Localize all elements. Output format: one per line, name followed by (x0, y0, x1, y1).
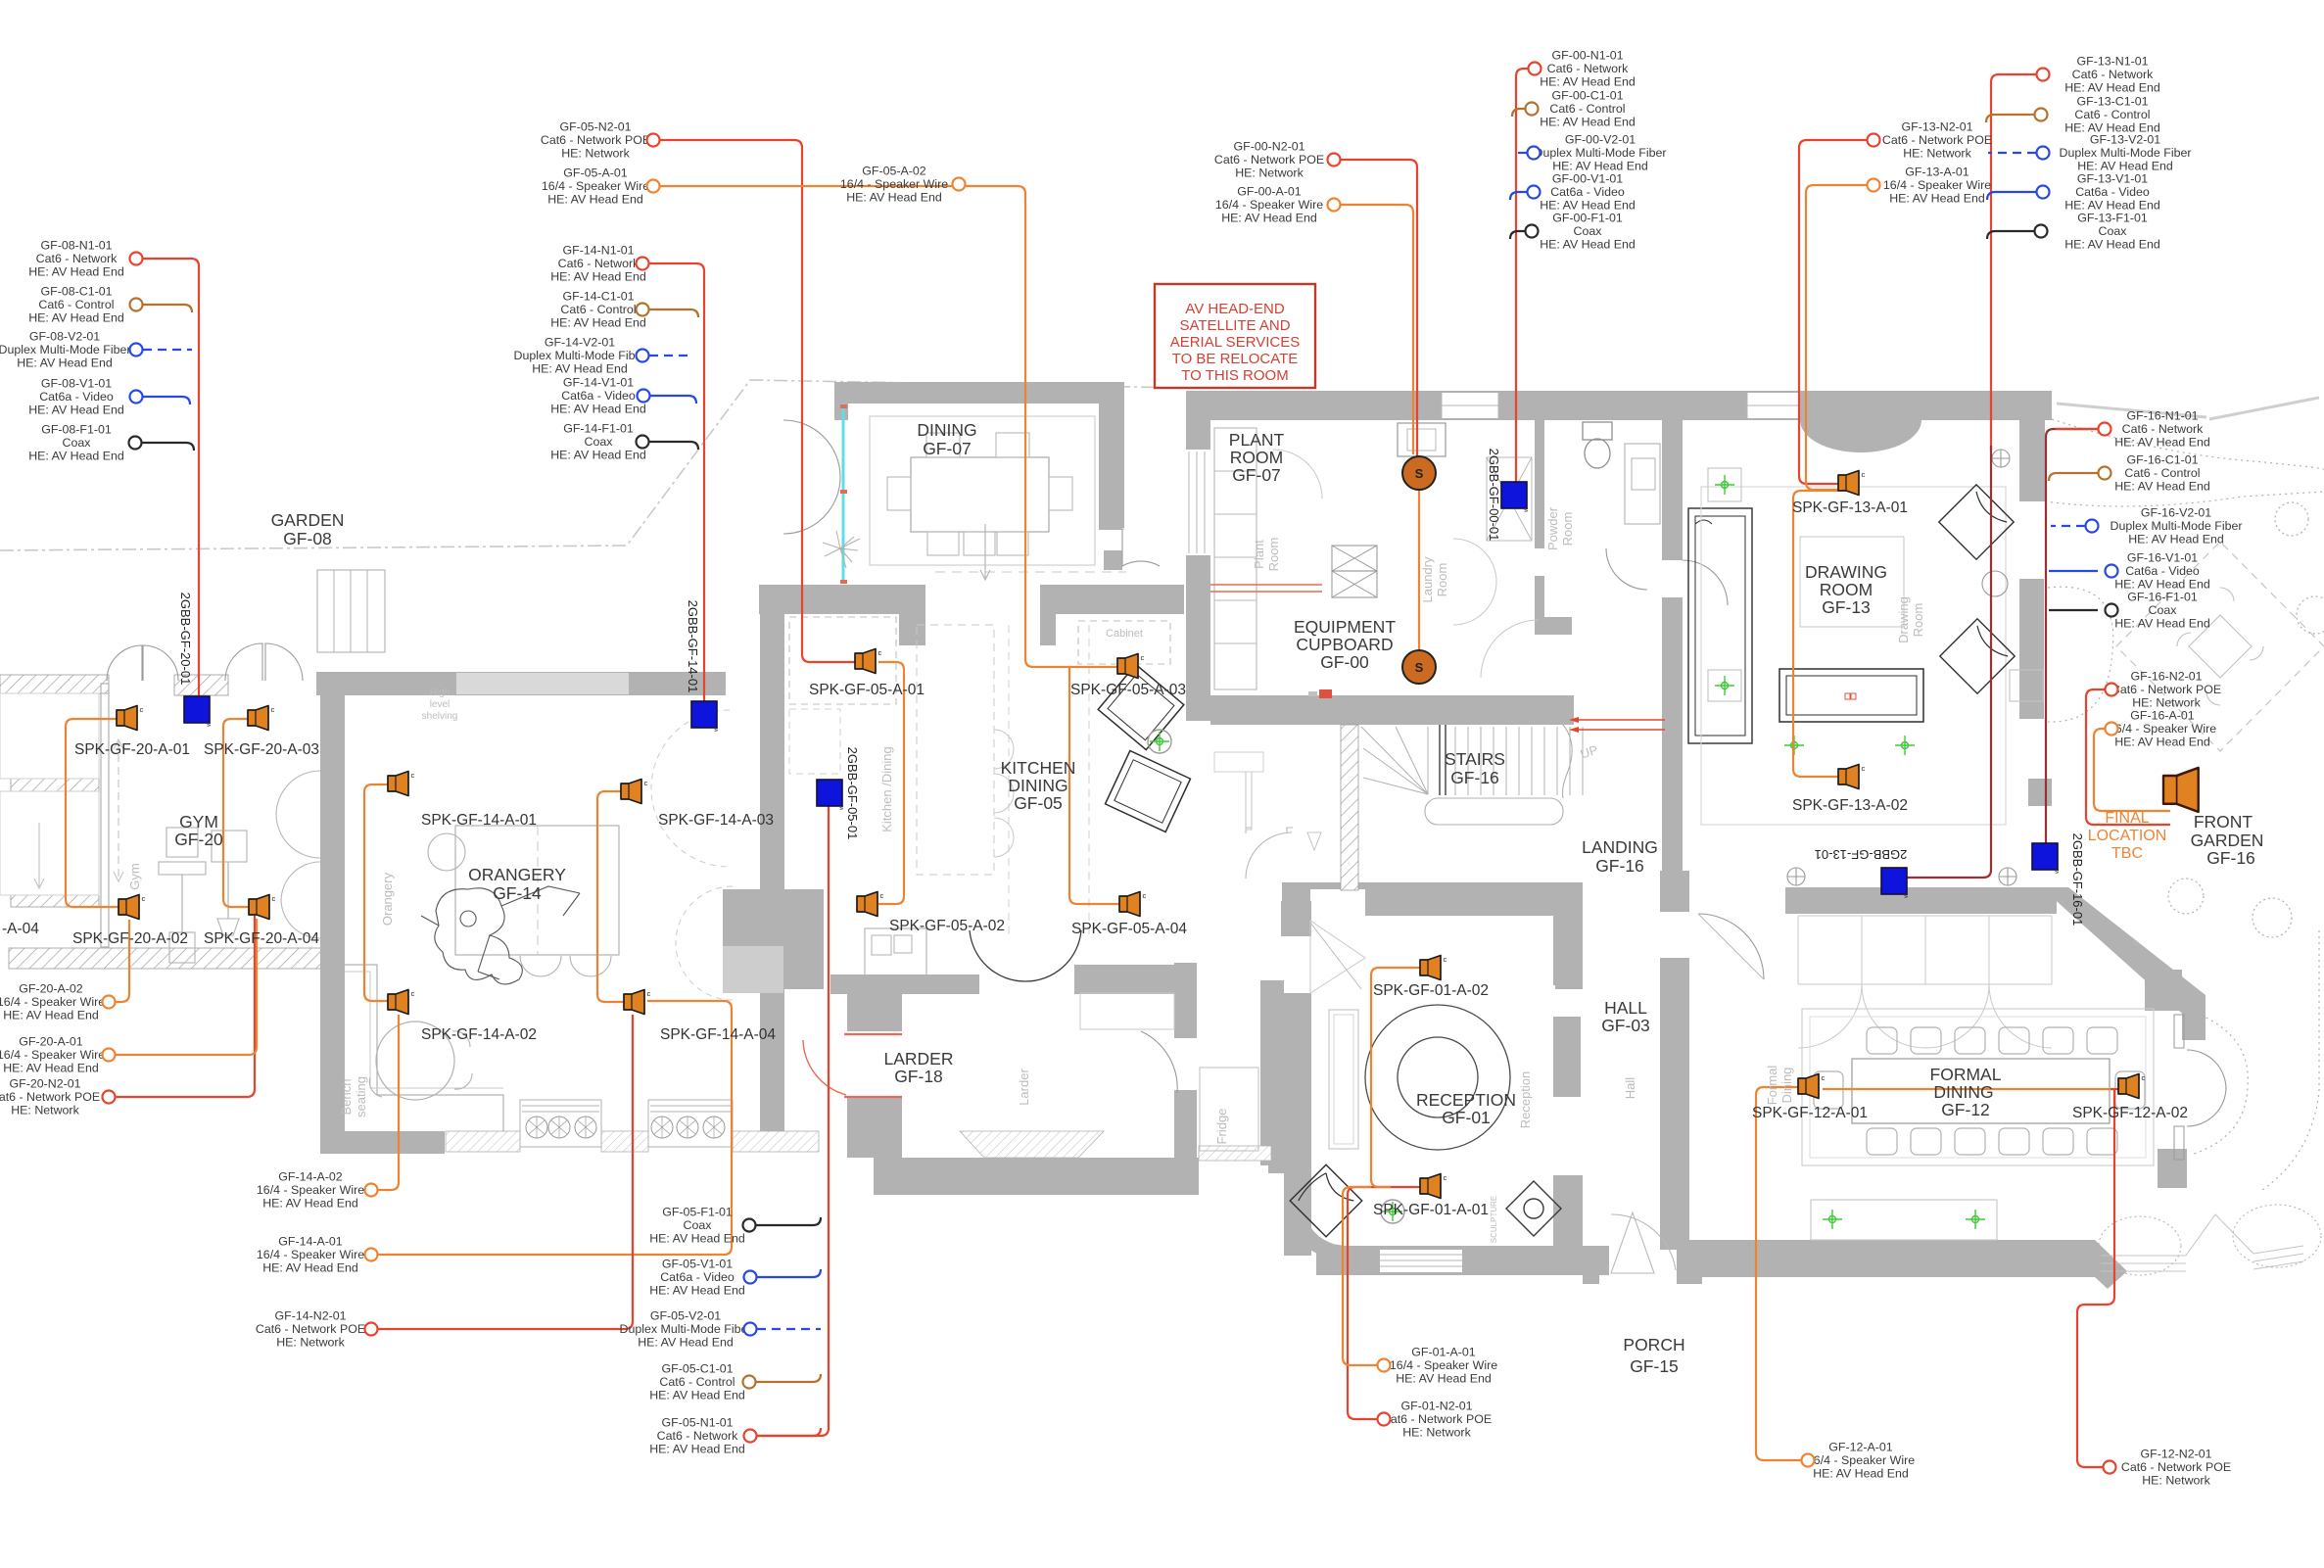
svg-text:HE: AV Head End: HE: AV Head End (2114, 480, 2210, 494)
svg-text:Duplex Multi-Mode Fiber: Duplex Multi-Mode Fiber (0, 343, 130, 356)
svg-text:c: c (411, 771, 415, 780)
svg-text:GF-05-F1-01: GF-05-F1-01 (662, 1206, 733, 1219)
svg-text:Duplex Multi-Mode Fiber: Duplex Multi-Mode Fiber (2111, 519, 2243, 533)
svg-text:GF-16: GF-16 (1595, 856, 1644, 876)
svg-text:c: c (411, 989, 415, 998)
svg-text:c: c (1862, 470, 1866, 479)
svg-text:16/4 - Speaker Wire: 16/4 - Speaker Wire (0, 995, 105, 1009)
svg-text:LOCATION: LOCATION (2088, 828, 2167, 844)
svg-text:GF-00-N1-01: GF-00-N1-01 (1552, 49, 1624, 63)
svg-text:HE: AV Head End: HE: AV Head End (28, 311, 124, 325)
svg-text:ORANGERY: ORANGERY (468, 865, 566, 884)
svg-text:Cat6 - Network POE: Cat6 - Network POE (256, 1322, 365, 1336)
svg-text:SPK-GF-01-A-01: SPK-GF-01-A-01 (1373, 1202, 1489, 1218)
svg-text:Cat6 - Network: Cat6 - Network (2122, 422, 2204, 436)
svg-text:w: w (1903, 893, 1910, 899)
svg-text:HE: AV Head End: HE: AV Head End (649, 1232, 745, 1246)
svg-text:16/4 - Speaker Wire: 16/4 - Speaker Wire (257, 1183, 364, 1197)
svg-text:Cat6 - Network: Cat6 - Network (657, 1429, 738, 1443)
svg-text:Cat6a - Video: Cat6a - Video (1550, 185, 1625, 199)
svg-text:GF-12: GF-12 (1941, 1100, 1990, 1119)
svg-text:Cat6 - Control: Cat6 - Control (38, 298, 114, 311)
svg-text:STAIRS: STAIRS (1445, 749, 1505, 769)
svg-text:GF-14: GF-14 (493, 883, 542, 903)
svg-text:SPK-GF-05-A-03: SPK-GF-05-A-03 (1070, 682, 1186, 698)
svg-text:HE: AV Head End: HE: AV Head End (28, 404, 124, 417)
svg-text:GF-16-C1-01: GF-16-C1-01 (2127, 453, 2199, 467)
svg-text:HE: AV Head End: HE: AV Head End (262, 1261, 358, 1275)
svg-text:seating: seating (354, 1076, 368, 1117)
svg-text:Coax: Coax (585, 435, 614, 449)
svg-text:HE: Network: HE: Network (2142, 1474, 2210, 1488)
svg-text:HE: AV Head End: HE: AV Head End (262, 1197, 358, 1211)
svg-text:16/4 - Speaker Wire: 16/4 - Speaker Wire (1390, 1358, 1497, 1372)
svg-text:GF-20-A-02: GF-20-A-02 (19, 982, 83, 996)
svg-text:AERIAL SERVICES: AERIAL SERVICES (1170, 334, 1301, 351)
svg-text:HE: AV Head End: HE: AV Head End (846, 191, 942, 205)
svg-text:SPK-GF-05-A-02: SPK-GF-05-A-02 (889, 918, 1005, 934)
svg-text:HE: AV Head End: HE: AV Head End (547, 193, 643, 207)
svg-text:GF-05-A-02: GF-05-A-02 (862, 165, 926, 178)
svg-text:HE: AV Head End: HE: AV Head End (28, 265, 124, 279)
svg-text:HE: AV Head End: HE: AV Head End (2077, 160, 2173, 173)
svg-text:SPK-GF-12-A-01: SPK-GF-12-A-01 (1752, 1105, 1868, 1121)
svg-text:Cat6 - Network POE: Cat6 - Network POE (2121, 1460, 2231, 1474)
svg-text:SPK-GF-13-A-02: SPK-GF-13-A-02 (1792, 797, 1908, 814)
svg-text:16/4 - Speaker Wire: 16/4 - Speaker Wire (2109, 722, 2216, 736)
svg-text:HE: Network: HE: Network (1903, 147, 1971, 161)
svg-text:GF-16-N1-01: GF-16-N1-01 (2127, 409, 2199, 423)
svg-text:GF-13-V2-01: GF-13-V2-01 (2090, 133, 2160, 147)
svg-text:GF-16-V2-01: GF-16-V2-01 (2141, 506, 2211, 520)
svg-text:Cat6a - Video: Cat6a - Video (2075, 185, 2150, 199)
svg-text:Cat6a - Video: Cat6a - Video (2125, 564, 2200, 578)
svg-text:EQUIPMENT: EQUIPMENT (1294, 617, 1396, 637)
svg-text:16/4 - Speaker Wire: 16/4 - Speaker Wire (1215, 198, 1323, 212)
svg-text:GF-13-F1-01: GF-13-F1-01 (2077, 212, 2148, 225)
svg-text:16/4 - Speaker Wire: 16/4 - Speaker Wire (840, 177, 948, 191)
svg-text:GF-16-N2-01: GF-16-N2-01 (2131, 670, 2203, 684)
svg-text:c: c (647, 989, 651, 998)
svg-text:HE: AV Head End: HE: AV Head End (1396, 1372, 1492, 1386)
svg-text:Cat6 - Network: Cat6 - Network (2072, 68, 2154, 81)
svg-text:Orangery: Orangery (380, 872, 395, 926)
svg-text:Dining: Dining (1779, 1068, 1794, 1104)
svg-text:HE: AV Head End: HE: AV Head End (3, 1062, 99, 1075)
svg-text:GF-14-A-01: GF-14-A-01 (278, 1235, 343, 1249)
svg-text:HE: AV Head End: HE: AV Head End (1540, 75, 1636, 89)
svg-text:Room: Room (1560, 512, 1575, 546)
svg-text:Room: Room (1435, 563, 1449, 597)
svg-text:GF-08-V2-01: GF-08-V2-01 (29, 330, 100, 344)
svg-text:FORMAL: FORMAL (1930, 1065, 2002, 1084)
svg-text:2GBB-GF-05-01: 2GBB-GF-05-01 (845, 747, 860, 840)
svg-text:c: c (878, 648, 882, 657)
svg-text:Cat6 - Control: Cat6 - Control (2124, 466, 2200, 480)
svg-text:Cat6a - Video: Cat6a - Video (39, 390, 114, 404)
svg-text:Duplex Multi-Mode Fiber: Duplex Multi-Mode Fiber (620, 1322, 752, 1336)
svg-text:GF-13-C1-01: GF-13-C1-01 (2077, 95, 2149, 109)
svg-text:2GBB-GF-20-01: 2GBB-GF-20-01 (178, 593, 193, 686)
svg-text:SPK-GF-20-A-02: SPK-GF-20-A-02 (72, 930, 188, 947)
svg-text:Cat6 - Control: Cat6 - Control (1549, 102, 1625, 116)
svg-text:SCULPTURE: SCULPTURE (1490, 1196, 1498, 1243)
svg-text:GF-05-N1-01: GF-05-N1-01 (662, 1416, 734, 1430)
svg-text:High: High (430, 688, 451, 698)
svg-text:HE: AV Head End: HE: AV Head End (28, 450, 124, 463)
svg-text:SPK-GF-20-A-03: SPK-GF-20-A-03 (204, 741, 319, 758)
svg-text:TO BE RELOCATE: TO BE RELOCATE (1172, 351, 1299, 367)
svg-text:Cat6 - Network POE: Cat6 - Network POE (1382, 1412, 1492, 1426)
svg-text:SPK-GF-14-A-01: SPK-GF-14-A-01 (421, 812, 537, 829)
svg-text:PLANT: PLANT (1229, 430, 1285, 450)
svg-text:GF-05-V1-01: GF-05-V1-01 (662, 1258, 733, 1271)
svg-text:2GBB-GF-14-01: 2GBB-GF-14-01 (686, 600, 700, 693)
svg-text:GF-05-N2-01: GF-05-N2-01 (560, 120, 632, 134)
svg-text:HALL: HALL (1604, 998, 1647, 1018)
svg-text:SPK-GF-12-A-02: SPK-GF-12-A-02 (2072, 1105, 2188, 1121)
svg-text:HE: AV Head End: HE: AV Head End (17, 356, 113, 370)
svg-text:GF-00: GF-00 (1320, 652, 1369, 672)
svg-text:KITCHEN: KITCHEN (1001, 758, 1076, 778)
svg-text:Cat6 - Control: Cat6 - Control (2074, 108, 2150, 121)
svg-text:GF-16-F1-01: GF-16-F1-01 (2127, 591, 2198, 604)
svg-text:c: c (271, 705, 275, 714)
svg-text:HE: Network: HE: Network (276, 1336, 345, 1350)
svg-text:HE: AV Head End: HE: AV Head End (1540, 116, 1636, 129)
svg-text:Coax: Coax (2099, 224, 2128, 238)
svg-text:SPK-GF-14-A-04: SPK-GF-14-A-04 (660, 1026, 776, 1043)
svg-text:HE: AV Head End: HE: AV Head End (2064, 238, 2160, 252)
svg-text:SPK-GF-20-A-04: SPK-GF-20-A-04 (204, 930, 319, 947)
svg-text:2GBB-GF-13-01: 2GBB-GF-13-01 (1815, 847, 1908, 862)
svg-text:GF-08-F1-01: GF-08-F1-01 (41, 423, 112, 437)
svg-text:GF-14-V2-01: GF-14-V2-01 (545, 336, 615, 350)
svg-text:SPK-GF-20-A-01: SPK-GF-20-A-01 (74, 741, 190, 758)
svg-text:16/4 - Speaker Wire: 16/4 - Speaker Wire (0, 1048, 105, 1062)
svg-text:GF-13: GF-13 (1822, 597, 1871, 617)
svg-text:HE: AV Head End: HE: AV Head End (1221, 212, 1317, 225)
svg-text:PORCH: PORCH (1623, 1335, 1684, 1354)
svg-text:HE: Network: HE: Network (1235, 166, 1304, 180)
svg-text:GF-00-N2-01: GF-00-N2-01 (1234, 140, 1305, 154)
svg-text:GF-08-V1-01: GF-08-V1-01 (41, 377, 112, 391)
svg-text:GF-01: GF-01 (1442, 1108, 1491, 1127)
svg-text:SPK-GF-14-A-03: SPK-GF-14-A-03 (658, 812, 774, 829)
svg-text:GF-20: GF-20 (174, 830, 223, 849)
svg-text:HE: AV Head End: HE: AV Head End (1889, 192, 1985, 206)
svg-text:c: c (272, 894, 276, 903)
svg-text:HE: AV Head End: HE: AV Head End (550, 270, 646, 284)
svg-text:GARDEN: GARDEN (271, 510, 345, 530)
svg-text:HE: AV Head End: HE: AV Head End (2064, 199, 2160, 213)
svg-text:shelving: shelving (422, 711, 458, 722)
svg-text:GF-08-N1-01: GF-08-N1-01 (41, 239, 113, 253)
svg-text:HE: AV Head End: HE: AV Head End (2064, 81, 2160, 95)
svg-text:Duplex Multi-Mode Fiber: Duplex Multi-Mode Fiber (2060, 146, 2192, 160)
svg-text:HE: AV Head End: HE: AV Head End (2128, 533, 2224, 546)
svg-text:GF-14-F1-01: GF-14-F1-01 (563, 422, 634, 436)
svg-text:Reception: Reception (1518, 1071, 1533, 1129)
svg-text:GF-05-V2-01: GF-05-V2-01 (650, 1309, 721, 1323)
svg-text:c: c (142, 894, 146, 903)
svg-text:w: w (206, 722, 213, 728)
svg-text:Gym: Gym (127, 863, 142, 889)
svg-text:level: level (430, 699, 451, 710)
svg-text:HE: AV Head End: HE: AV Head End (2114, 578, 2210, 592)
svg-text:c: c (1444, 955, 1447, 964)
svg-text:w: w (713, 727, 720, 733)
svg-text:GF-00-V2-01: GF-00-V2-01 (1565, 133, 1636, 147)
svg-text:16/4 - Speaker Wire: 16/4 - Speaker Wire (542, 179, 649, 193)
svg-text:Cat6 - Network POE: Cat6 - Network POE (1214, 153, 1324, 166)
svg-text:GF-00-A-01: GF-00-A-01 (1237, 185, 1302, 199)
svg-text:HE: AV Head End: HE: AV Head End (2114, 436, 2210, 450)
svg-text:GF-00-C1-01: GF-00-C1-01 (1552, 89, 1624, 103)
svg-text:HE: AV Head End: HE: AV Head End (2114, 617, 2210, 631)
svg-text:Room: Room (1266, 538, 1281, 572)
svg-text:GF-16: GF-16 (2206, 848, 2255, 868)
svg-text:LANDING: LANDING (1582, 837, 1658, 857)
svg-text:Drawing: Drawing (1896, 596, 1911, 643)
svg-text:Cat6 - Control: Cat6 - Control (659, 1375, 735, 1389)
svg-text:GF-14-A-02: GF-14-A-02 (278, 1170, 343, 1184)
svg-text:Cat6a - Video: Cat6a - Video (660, 1270, 735, 1284)
svg-text:TBC: TBC (2111, 845, 2143, 862)
svg-text:GF-14-N2-01: GF-14-N2-01 (275, 1309, 347, 1323)
svg-text:Cat6 - Network POE: Cat6 - Network POE (1882, 133, 1992, 147)
svg-text:Fridge: Fridge (1214, 1109, 1229, 1145)
svg-text:Coax: Coax (63, 436, 92, 450)
svg-text:HE: AV Head End: HE: AV Head End (550, 403, 646, 416)
svg-text:FINAL: FINAL (2105, 810, 2149, 827)
svg-text:2GBB-GF-16-01: 2GBB-GF-16-01 (2070, 833, 2085, 927)
svg-text:HE: AV Head End: HE: AV Head End (532, 362, 628, 376)
svg-text:HE: AV Head End: HE: AV Head End (1540, 238, 1636, 252)
svg-text:RECEPTION: RECEPTION (1416, 1090, 1516, 1110)
svg-text:c: c (2142, 1073, 2146, 1082)
svg-text:SPK-GF-01-A-02: SPK-GF-01-A-02 (1373, 982, 1489, 999)
svg-text:c: c (1141, 653, 1145, 662)
svg-text:Coax: Coax (1574, 224, 1603, 238)
svg-text:Cat6a - Video: Cat6a - Video (561, 389, 636, 403)
svg-text:AV HEAD-END: AV HEAD-END (1185, 301, 1285, 317)
svg-text:GF-16-A-01: GF-16-A-01 (2130, 709, 2195, 723)
svg-text:Powder: Powder (1545, 506, 1560, 550)
svg-text:HE: AV Head End: HE: AV Head End (1813, 1467, 1909, 1481)
svg-text:Kitchen /Dining: Kitchen /Dining (879, 746, 894, 832)
svg-text:HE: Network: HE: Network (11, 1104, 79, 1117)
svg-text:DINING: DINING (917, 420, 976, 440)
svg-text:SPK-GF-05-A-01: SPK-GF-05-A-01 (809, 682, 925, 698)
svg-text:GARDEN: GARDEN (2191, 831, 2264, 850)
svg-text:HE: AV Head End: HE: AV Head End (649, 1443, 745, 1456)
svg-text:Room: Room (1911, 603, 1925, 638)
svg-text:S: S (1415, 660, 1424, 675)
svg-text:HE: Network: HE: Network (2132, 696, 2201, 710)
svg-text:Formal: Formal (1765, 1066, 1779, 1106)
svg-text:GF-12-N2-01: GF-12-N2-01 (2141, 1448, 2212, 1461)
svg-text:GF-16: GF-16 (1450, 768, 1499, 787)
svg-text:GF-08: GF-08 (283, 529, 332, 548)
svg-text:HE: Network: HE: Network (1402, 1426, 1471, 1440)
svg-text:GF-16-V1-01: GF-16-V1-01 (2127, 551, 2198, 565)
svg-text:Laundry: Laundry (1420, 556, 1435, 602)
svg-text:GF-14-V1-01: GF-14-V1-01 (563, 376, 634, 390)
svg-text:GF-05-A-01: GF-05-A-01 (563, 166, 628, 180)
svg-text:c: c (1822, 1073, 1826, 1082)
svg-text:HE: Network: HE: Network (561, 147, 630, 161)
svg-text:Hall: Hall (1623, 1077, 1637, 1100)
svg-text:c: c (1143, 891, 1147, 900)
svg-text:16/4 - Speaker Wire: 16/4 - Speaker Wire (1807, 1453, 1915, 1467)
svg-text:HE: AV Head End: HE: AV Head End (649, 1284, 745, 1298)
svg-text:GF-01-N2-01: GF-01-N2-01 (1401, 1400, 1473, 1413)
svg-text:GF-13-A-01: GF-13-A-01 (1905, 166, 1969, 179)
svg-text:SPK-GF-14-A-02: SPK-GF-14-A-02 (421, 1026, 537, 1043)
svg-text:16/4 - Speaker Wire: 16/4 - Speaker Wire (257, 1248, 364, 1261)
svg-text:16/4 - Speaker Wire: 16/4 - Speaker Wire (1883, 178, 1991, 192)
svg-text:GF-13-V1-01: GF-13-V1-01 (2077, 172, 2148, 186)
svg-text:Cat6 - Network: Cat6 - Network (558, 257, 640, 270)
svg-text:c: c (1862, 764, 1866, 773)
svg-text:LARDER: LARDER (884, 1049, 954, 1069)
svg-text:HE: AV Head End: HE: AV Head End (550, 449, 646, 462)
svg-text:Bench: Bench (339, 1079, 354, 1116)
svg-text:Cat6 - Network POE: Cat6 - Network POE (0, 1090, 100, 1104)
svg-text:Duplex Multi-Mode Fiber: Duplex Multi-Mode Fiber (1535, 146, 1667, 160)
svg-text:Duplex Multi-Mode Fiber: Duplex Multi-Mode Fiber (514, 349, 646, 362)
svg-text:GF-03: GF-03 (1601, 1016, 1650, 1035)
svg-text:HE: AV Head End: HE: AV Head End (638, 1336, 734, 1350)
svg-text:GF-00-F1-01: GF-00-F1-01 (1552, 212, 1623, 225)
svg-text:GF-14-N1-01: GF-14-N1-01 (563, 244, 635, 258)
svg-text:c: c (140, 705, 144, 714)
svg-text:GF-13-N1-01: GF-13-N1-01 (2077, 55, 2149, 69)
svg-text:HE: AV Head End: HE: AV Head End (2114, 736, 2210, 749)
svg-text:GF-12-A-01: GF-12-A-01 (1828, 1441, 1893, 1454)
svg-text:GF-05-C1-01: GF-05-C1-01 (662, 1362, 734, 1376)
svg-text:Coax: Coax (2149, 603, 2178, 617)
svg-text:GF-01-A-01: GF-01-A-01 (1411, 1346, 1476, 1359)
svg-text:ROOM: ROOM (1230, 448, 1283, 467)
svg-text:c: c (880, 891, 884, 900)
svg-text:GF-05: GF-05 (1014, 793, 1063, 813)
svg-text:GF-14-C1-01: GF-14-C1-01 (563, 290, 635, 304)
svg-text:GF-15: GF-15 (1630, 1356, 1679, 1376)
svg-text:HE: AV Head End: HE: AV Head End (649, 1389, 745, 1402)
svg-text:HE: AV Head End: HE: AV Head End (550, 316, 646, 330)
svg-text:w: w (838, 805, 845, 811)
svg-text:w: w (1523, 507, 1530, 513)
svg-text:Cat6 - Network POE: Cat6 - Network POE (2111, 683, 2221, 696)
svg-text:c: c (1444, 1173, 1447, 1182)
svg-text:GF-20-A-01: GF-20-A-01 (19, 1035, 83, 1049)
svg-text:TO THIS ROOM: TO THIS ROOM (1181, 367, 1288, 384)
svg-text:Larder: Larder (1017, 1069, 1031, 1106)
svg-text:GF-00-V1-01: GF-00-V1-01 (1552, 172, 1623, 186)
svg-text:GF-07: GF-07 (1232, 465, 1281, 485)
svg-text:GF-20-N2-01: GF-20-N2-01 (10, 1077, 81, 1091)
svg-text:HE: AV Head End: HE: AV Head End (1552, 160, 1648, 173)
svg-text:GF-13-N2-01: GF-13-N2-01 (1902, 120, 1973, 134)
svg-text:Cat6 - Network: Cat6 - Network (1547, 62, 1629, 75)
svg-text:Cat6 - Network: Cat6 - Network (36, 252, 118, 265)
svg-text:SPK-GF-05-A-04: SPK-GF-05-A-04 (1071, 921, 1187, 937)
svg-text:GF-08-C1-01: GF-08-C1-01 (41, 285, 113, 299)
svg-text:GF-07: GF-07 (923, 439, 972, 458)
svg-text:S: S (1415, 466, 1424, 481)
svg-text:GYM: GYM (179, 812, 218, 832)
svg-text:DRAWING: DRAWING (1805, 562, 1887, 582)
svg-text:c: c (644, 779, 648, 787)
svg-text:2GBB-GF-00-01: 2GBB-GF-00-01 (1487, 449, 1501, 542)
svg-text:Cabinet: Cabinet (1106, 628, 1143, 640)
svg-text:SATELLITE AND: SATELLITE AND (1179, 317, 1290, 334)
svg-text:DINING: DINING (1008, 776, 1067, 795)
svg-text:w: w (2054, 869, 2061, 875)
svg-text:Coax: Coax (684, 1218, 713, 1232)
svg-text:FRONT: FRONT (2194, 812, 2253, 832)
svg-text:Cat6 - Network POE: Cat6 - Network POE (541, 133, 650, 147)
svg-text:-A-04: -A-04 (2, 921, 39, 937)
svg-text:Plant: Plant (1252, 540, 1266, 569)
svg-text:HE: AV Head End: HE: AV Head End (1540, 199, 1636, 213)
svg-text:CUPBOARD: CUPBOARD (1296, 635, 1393, 654)
svg-text:DINING: DINING (1933, 1082, 1993, 1102)
svg-text:ROOM: ROOM (1820, 580, 1873, 599)
svg-text:HE: AV Head End: HE: AV Head End (3, 1009, 99, 1022)
svg-text:GF-18: GF-18 (894, 1067, 943, 1086)
svg-text:SPK-GF-13-A-01: SPK-GF-13-A-01 (1792, 499, 1908, 516)
svg-text:Cat6 - Control: Cat6 - Control (560, 303, 636, 316)
